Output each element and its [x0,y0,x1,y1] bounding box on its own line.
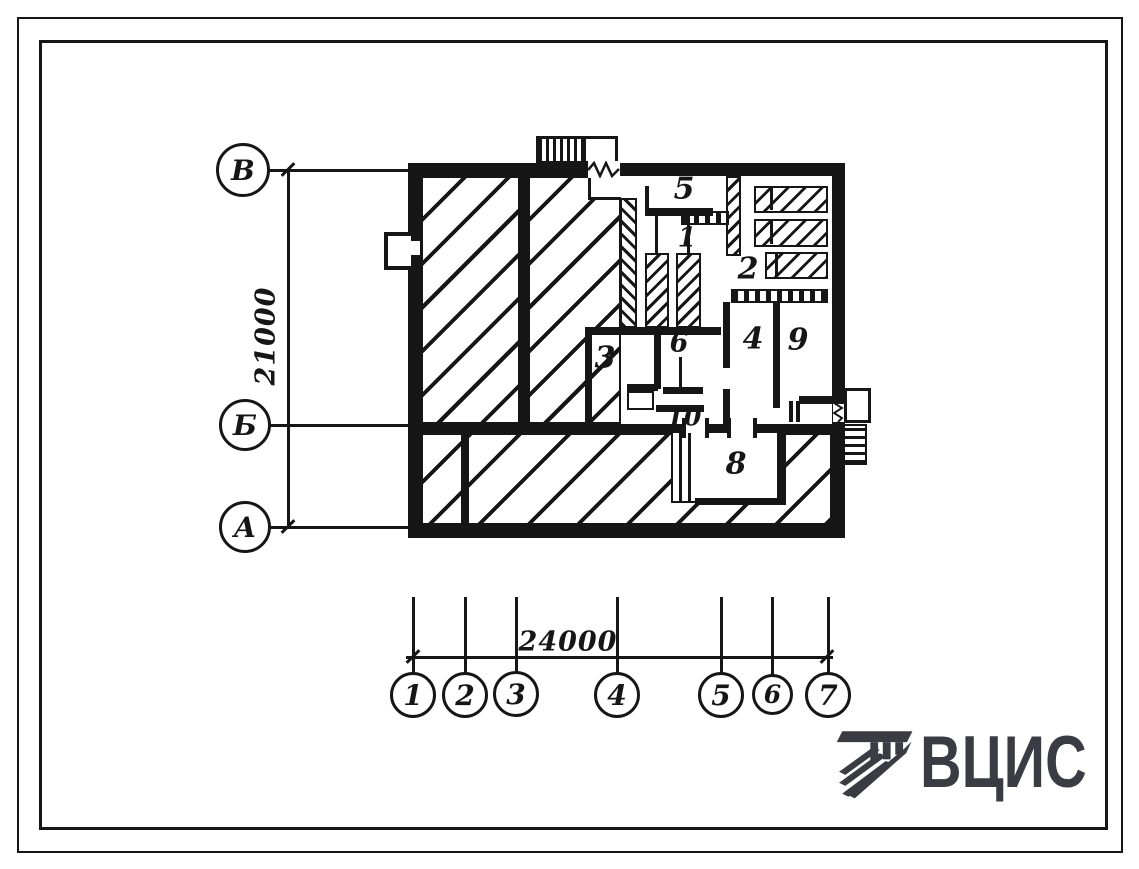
room-3-label: 3 [595,341,616,376]
room-9-label: 9 [788,323,809,358]
logo-emblem-icon [836,724,914,804]
bunk-divider [775,254,778,276]
wall-above-entrance [799,396,845,404]
logo: ВЦИС [836,722,1086,804]
bunk-divider [770,188,773,210]
stair-flight-strip [620,198,637,328]
door-jamb [796,401,800,422]
door-gap [731,424,753,433]
fixture-box [627,391,654,410]
room-4-left-wall [723,302,730,368]
right-entrance-porch [844,388,871,423]
room-8-label: 8 [726,447,747,482]
equipment-stub [655,216,658,254]
left-exit-box [384,232,411,270]
wall-break [588,161,620,178]
bunk-divider [770,221,773,244]
room-8-right-wall [777,433,786,505]
bunk-symbol [765,252,828,279]
bunk-symbol [754,219,828,247]
hatched-block-left [421,176,520,424]
outer-wall-left [408,163,421,538]
break-zigzag-icon [588,161,620,178]
top-entrance-stairs-icon [536,136,584,164]
stair-corridor-step [679,432,682,502]
light-partition [731,289,828,303]
room-3-left-wall [585,327,592,427]
fixture-bar [627,384,658,391]
fixture-bar [663,387,703,394]
room-8-bottom-wall [695,498,783,505]
drawing-sheet: В Б А 21000 24000 1 2 3 4 5 6 7 [0,0,1139,869]
room-5-label: 5 [674,172,695,207]
hatched-wall-pier [726,176,741,256]
interior-wall [519,176,528,424]
room-3-top-wall [585,327,721,335]
outer-wall-top [408,163,845,176]
equipment-unit [676,253,701,328]
logo-text: ВЦИС [920,726,1087,799]
room-10-label: 10 [667,403,702,432]
outer-wall-right [832,163,845,538]
door-jamb [705,418,709,438]
right-entrance-stairs-icon [842,424,867,465]
mid-wall [421,424,832,433]
equipment-unit [645,253,669,328]
top-entrance-landing [583,136,618,164]
hatched-block-center [528,176,621,424]
band-dividing-wall [461,433,469,525]
bunk-symbol [754,186,828,213]
room-1-label: 1 [678,223,697,254]
room-4-left-wall [723,389,730,425]
wall-between-4-9 [773,302,780,408]
room-2-label: 2 [738,252,759,287]
fixture-stub [679,357,682,389]
door-jamb [753,418,757,438]
stair-corridor-step [688,432,691,502]
room-6-label: 6 [670,328,689,359]
stair-corridor [671,431,701,503]
left-wall-opening [409,241,420,255]
room-4-label: 4 [743,322,764,357]
wall-between-3-6 [654,335,661,389]
outer-wall-bottom [408,525,845,538]
door-jamb [789,401,793,422]
